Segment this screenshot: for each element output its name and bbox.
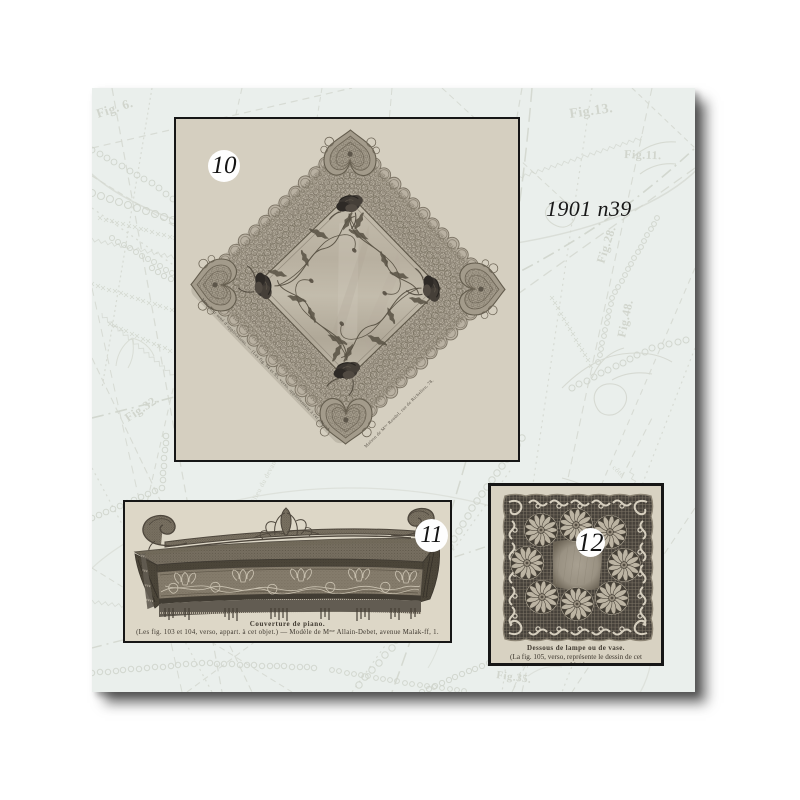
svg-text:Fig. 6.: Fig. 6. (94, 95, 135, 121)
svg-text:côté: côté (611, 464, 626, 479)
svg-text:Fig.32.: Fig.32. (122, 392, 162, 425)
svg-text:Fig.13.: Fig.13. (568, 101, 614, 122)
svg-text:Fig.35.: Fig.35. (496, 669, 533, 686)
svg-text:Fig.11.: Fig.11. (624, 147, 662, 162)
svg-text:Fig.48.: Fig.48. (614, 298, 636, 338)
